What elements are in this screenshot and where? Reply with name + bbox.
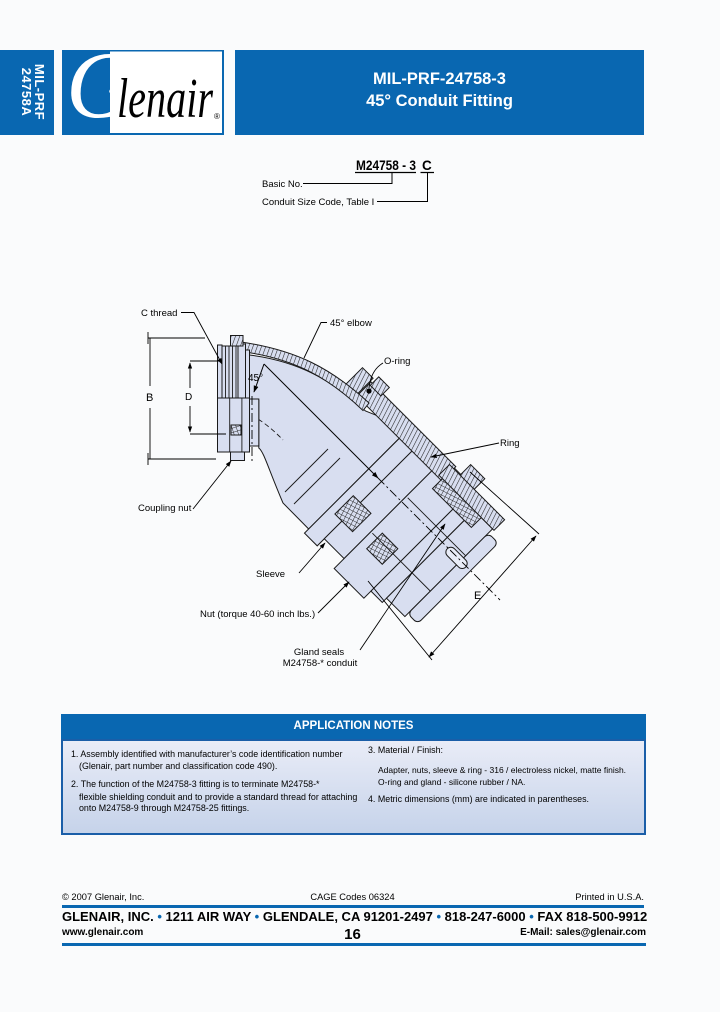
svg-text:45° elbow: 45° elbow (330, 318, 372, 329)
svg-text:D: D (185, 392, 192, 403)
svg-text:E: E (474, 590, 481, 602)
svg-text:O-ring: O-ring (384, 356, 410, 367)
svg-text:Gland seals: Gland seals (294, 647, 344, 658)
svg-text:Nut (torque 40-60 inch lbs.): Nut (torque 40-60 inch lbs.) (200, 609, 315, 620)
svg-text:B: B (146, 392, 153, 404)
svg-text:C thread: C thread (141, 308, 177, 319)
svg-text:M24758-* conduit: M24758-* conduit (283, 658, 358, 669)
svg-text:Ring: Ring (500, 438, 520, 449)
svg-text:Coupling nut: Coupling nut (138, 503, 192, 514)
svg-text:45°: 45° (248, 373, 263, 384)
svg-text:Sleeve: Sleeve (256, 569, 285, 580)
